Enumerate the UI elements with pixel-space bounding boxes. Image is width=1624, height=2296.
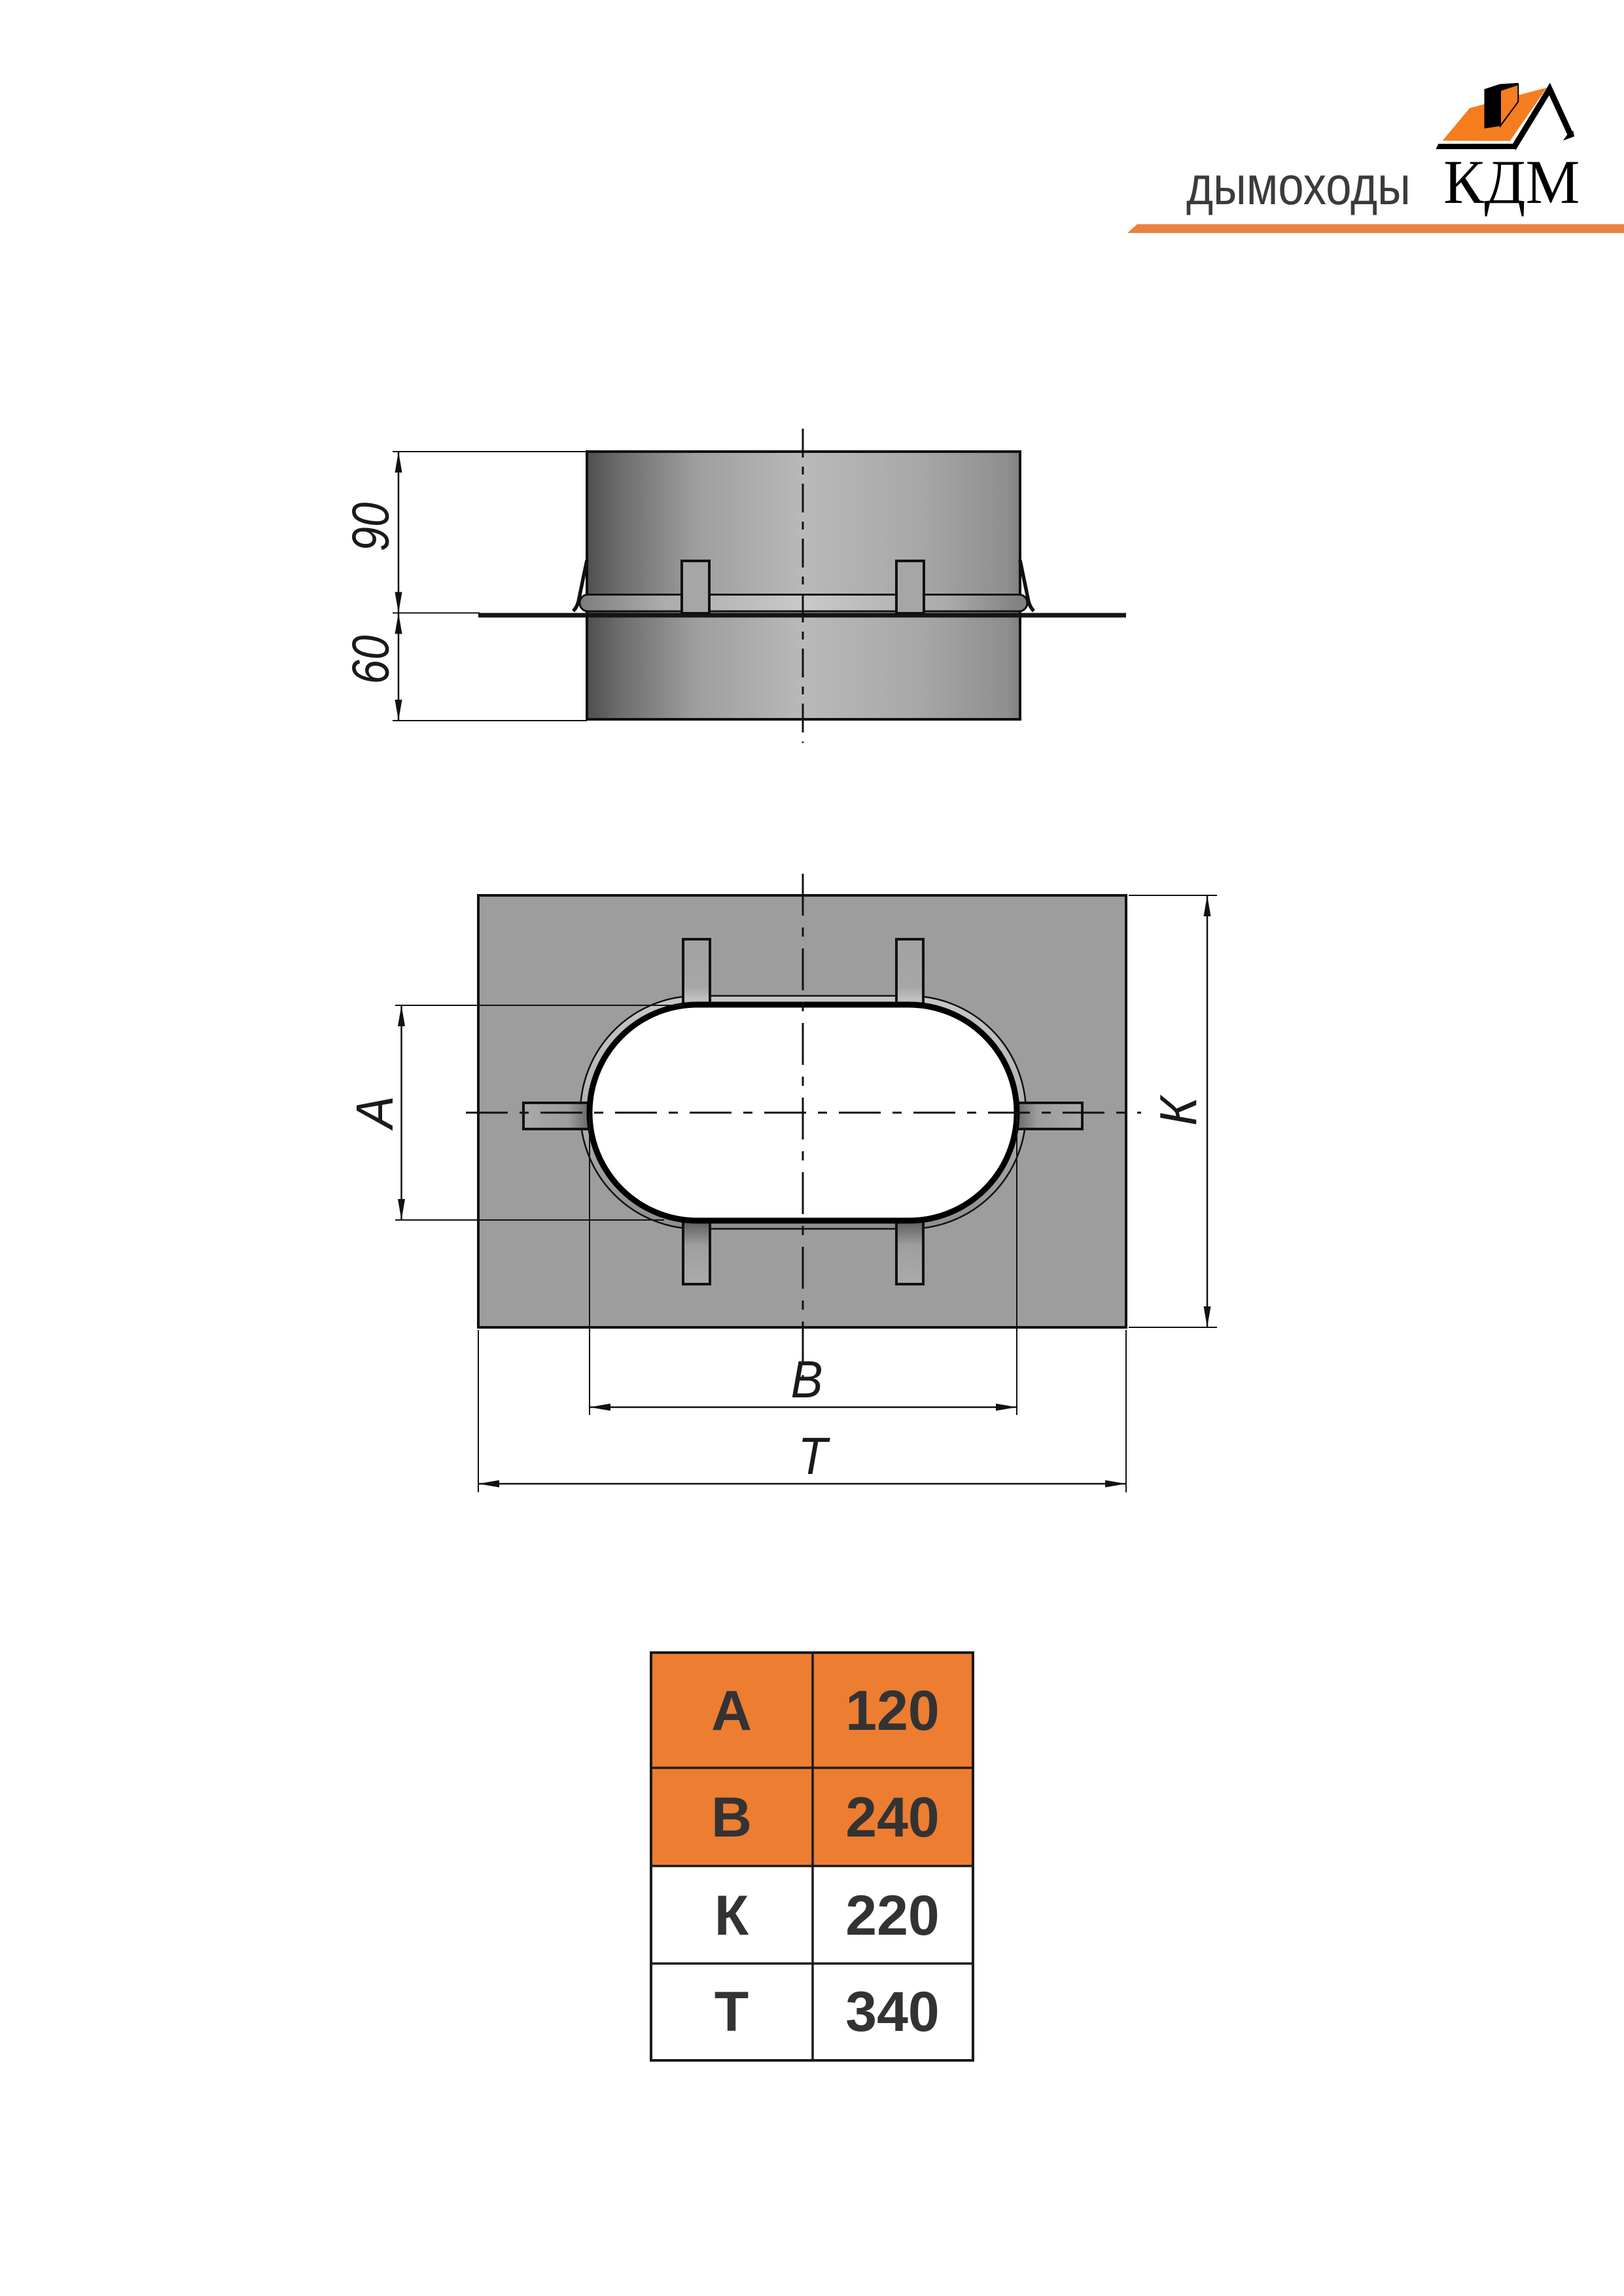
svg-text:220: 220 — [845, 1884, 940, 1947]
svg-text:В: В — [711, 1786, 752, 1849]
svg-text:В: В — [790, 1350, 822, 1409]
svg-text:А: А — [346, 1096, 404, 1130]
svg-text:Т: Т — [715, 1981, 749, 2043]
svg-text:К: К — [715, 1884, 749, 1947]
svg-text:Т: Т — [798, 1427, 831, 1486]
svg-text:К: К — [1150, 1094, 1208, 1126]
svg-text:дымоходы: дымоходы — [1186, 156, 1411, 217]
svg-text:60: 60 — [341, 636, 400, 685]
svg-text:120: 120 — [845, 1679, 940, 1742]
svg-text:240: 240 — [845, 1786, 940, 1849]
svg-text:340: 340 — [845, 1981, 940, 2043]
svg-text:А: А — [711, 1679, 752, 1742]
svg-text:90: 90 — [341, 503, 400, 552]
svg-text:КДМ: КДМ — [1443, 148, 1580, 217]
